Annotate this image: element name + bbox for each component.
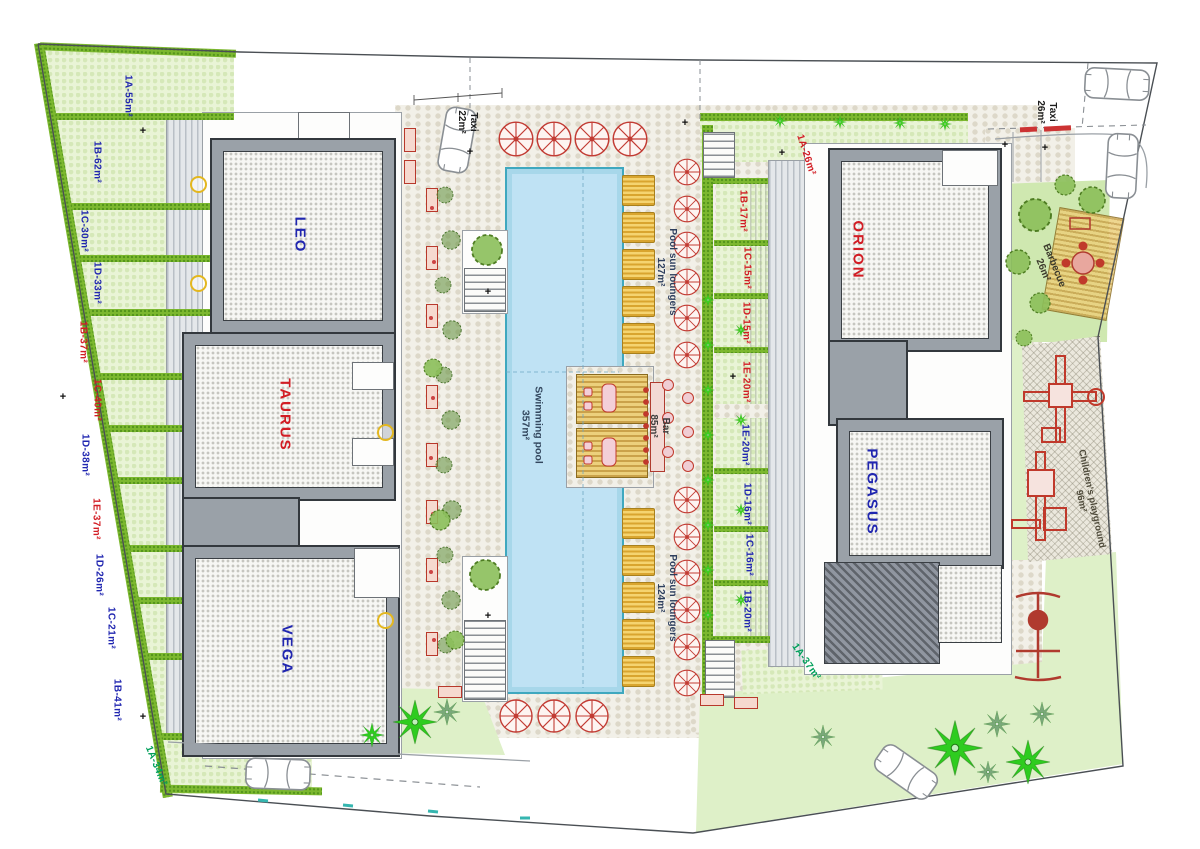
bench [404,160,416,184]
sun-lounger [622,582,655,613]
bench [426,246,438,270]
bench [426,632,438,656]
stairs [703,132,735,178]
site-plan: + + + + + + + + + + + LEO TAURUS VEGA OR… [0,0,1200,849]
south-boundary-hedge [160,785,322,796]
playground-surface [1018,336,1120,566]
bench [426,385,438,409]
plot-label: 1D-16m² [742,483,753,525]
dimension-line [414,93,502,100]
loungers-south-label: Pool sun loungers124m² [654,554,678,641]
loungers-east-label: Pool sun loungers127m² [654,228,678,315]
plot-label: 1B-41m² [112,679,123,721]
elevation-marker: + [140,125,146,137]
elevation-marker: + [1042,142,1048,154]
bar-deck [576,374,648,424]
plot-label: 1C-16m² [744,534,755,576]
building-label-vega: VEGA [279,625,296,676]
dimension-ticks [414,88,502,105]
sun-lounger [622,619,655,650]
hedge-row [712,178,768,184]
boundary-ticks [258,800,530,818]
building-connector [182,497,300,549]
sun-lounger [622,545,655,576]
hot-tub-icon [377,612,394,629]
taurus-terrace [352,362,394,390]
hot-tub-icon [190,176,207,193]
pegasus-annex [938,565,1002,643]
plot-label: 1A-55m² [123,75,134,117]
plot-label: 1E-20m² [741,361,752,403]
bench [426,304,438,328]
building-label-leo: LEO [292,217,309,254]
hedge-row [700,113,968,121]
bench [426,443,438,467]
elevation-marker: + [682,117,688,129]
plot-label: 1C-30m² [79,210,90,252]
elevation-marker: + [1002,139,1008,151]
plot-label: 1C-15m² [742,247,753,289]
sun-lounger [622,286,655,317]
sun-lounger [622,212,655,243]
sun-lounger [622,323,655,354]
sun-lounger [622,656,655,687]
bench [426,188,438,212]
plot-label: 1D-26m² [94,554,105,596]
elevation-marker: + [485,610,491,622]
stairs [705,640,735,698]
taxi-east-label: Taxi26m² [1034,100,1058,123]
building-pegasus [836,418,1004,569]
bench [404,128,416,152]
bar-deck [576,428,648,478]
vega-terrace [354,548,400,598]
plot-label: 1B-37m² [78,321,89,363]
plot-label: 1B-62m² [92,141,103,183]
plot-label: 1C-40m² [92,379,103,421]
building-label-taurus: TAURUS [277,378,294,451]
building-label-orion: ORION [850,220,867,279]
hedge-row [714,293,768,299]
plot-label: 1D-38m² [80,434,91,476]
plot-label: 1D-33m² [92,262,103,304]
elevation-marker: + [467,146,473,158]
sun-lounger [622,175,655,206]
lot-line [1082,63,1088,128]
plot-label: 1D-15m² [741,302,752,344]
plot-label: 1B-20m² [742,590,753,632]
elevation-marker: + [730,371,736,383]
bench [734,697,758,709]
bench [426,558,438,582]
bench [700,694,724,706]
stairs [464,620,506,700]
bench [438,686,462,698]
sun-lounger [622,249,655,280]
pool-east-hedge [702,125,713,700]
pegasus-ramp [824,562,940,664]
plot-label: 1E-20m² [740,424,751,466]
hot-tub-icon [377,424,394,441]
plot-label: 1B-17m² [738,190,749,232]
pool-bar-label: Bar85m² [647,414,671,437]
elevation-marker: + [60,391,66,403]
hedge-row [714,468,768,474]
building-orion-wing [828,340,908,426]
hedge-row [50,113,234,120]
swimming-pool-label: Swimming pool357m² [519,386,544,464]
plot-label: 1C-21m² [106,607,117,649]
hedge-row [714,526,768,532]
plots-walk-gap [714,404,768,418]
elevation-marker: + [140,711,146,723]
building-label-pegasus: PEGASUS [864,448,881,535]
elevation-marker: + [779,147,785,159]
hot-tub-icon [190,275,207,292]
taurus-terrace [352,438,394,466]
hedge-row [714,580,768,586]
bench [426,500,438,524]
hedge-row [714,347,768,353]
orion-terrace [942,150,998,186]
elevation-marker: + [485,286,491,298]
plot-label: 1E-37m² [91,498,102,540]
sun-lounger [622,508,655,539]
hedge-row [714,240,768,246]
taxi-west-label: Taxi22m² [455,110,479,133]
